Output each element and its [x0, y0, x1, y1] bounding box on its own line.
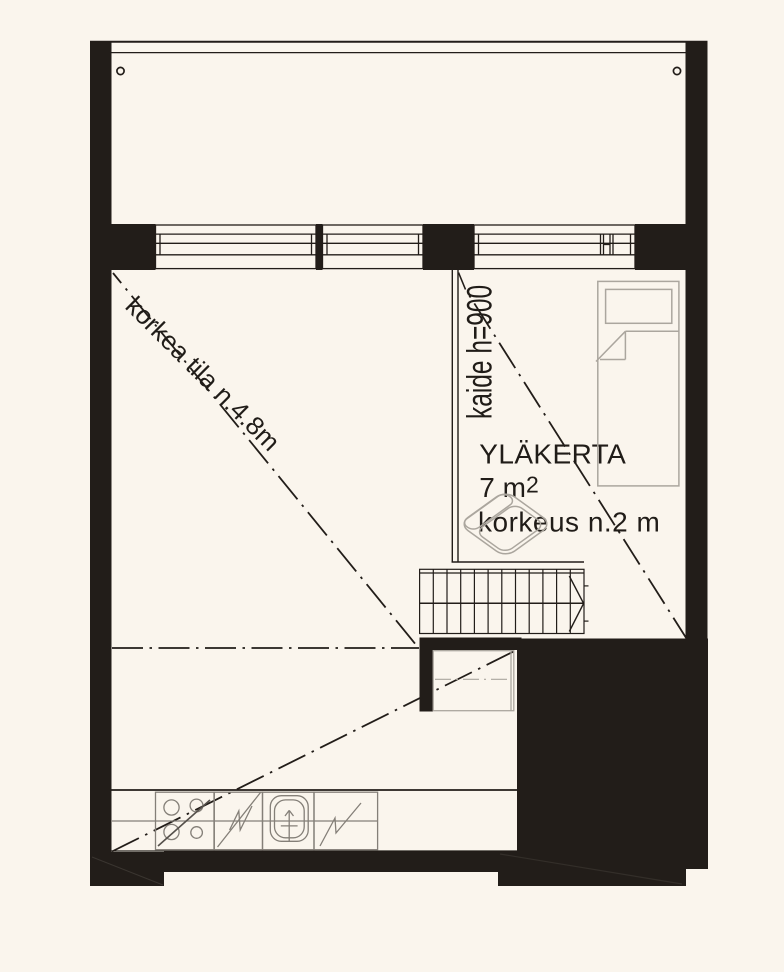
svg-text:kaide h=900: kaide h=900	[461, 285, 499, 419]
svg-text:YLÄKERTA: YLÄKERTA	[479, 439, 626, 470]
